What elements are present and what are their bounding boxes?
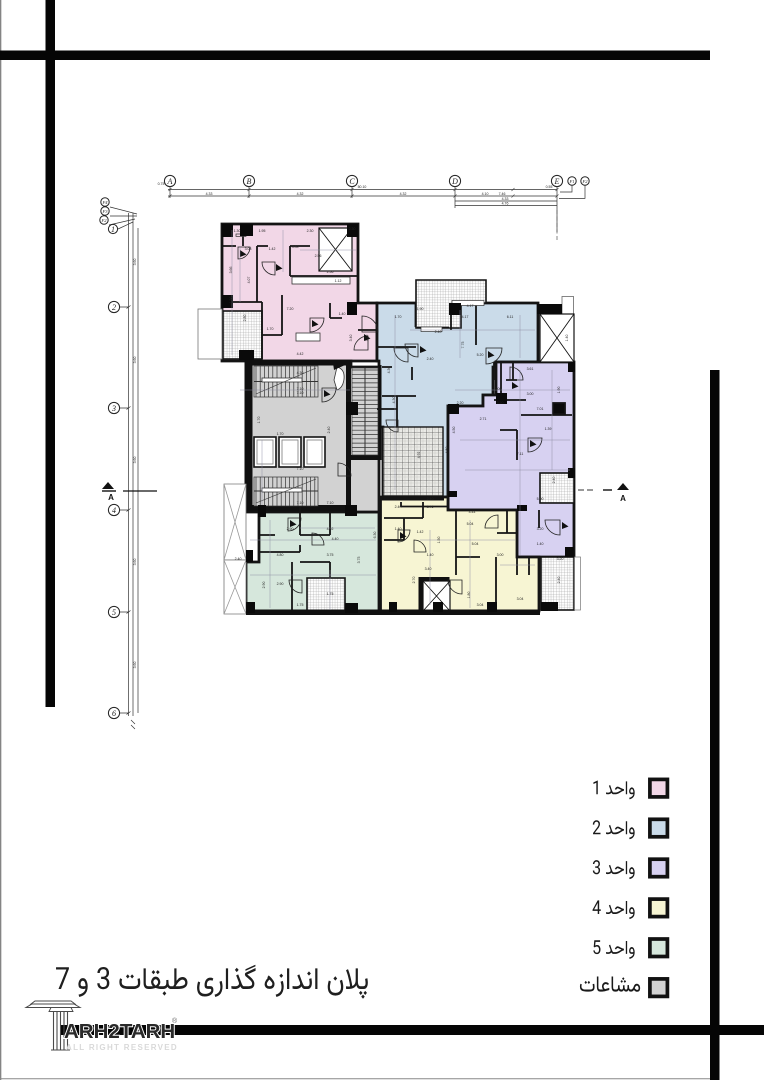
svg-text:1.70: 1.70 bbox=[267, 327, 274, 331]
svg-text:4.17: 4.17 bbox=[467, 304, 474, 308]
svg-text:2.80: 2.80 bbox=[243, 315, 247, 322]
svg-text:2.30: 2.30 bbox=[307, 229, 314, 233]
svg-text:A: A bbox=[620, 494, 626, 503]
svg-text:2.56: 2.56 bbox=[315, 254, 322, 258]
svg-text:2.40: 2.40 bbox=[552, 477, 556, 484]
svg-text:D: D bbox=[451, 177, 458, 186]
svg-text:0.75: 0.75 bbox=[158, 182, 165, 186]
svg-text:2.40: 2.40 bbox=[427, 497, 434, 501]
svg-text:5.00: 5.00 bbox=[537, 497, 544, 501]
svg-text:7.11: 7.11 bbox=[517, 452, 524, 456]
svg-text:6.30: 6.30 bbox=[373, 532, 377, 539]
svg-text:2.40: 2.40 bbox=[327, 427, 331, 434]
svg-text:50.10: 50.10 bbox=[358, 185, 367, 189]
svg-text:F1: F1 bbox=[569, 179, 575, 184]
svg-text:7.01: 7.01 bbox=[537, 407, 544, 411]
svg-text:F2: F2 bbox=[582, 179, 589, 184]
svg-text:3.60: 3.60 bbox=[133, 259, 137, 266]
svg-text:6.11: 6.11 bbox=[507, 315, 514, 319]
svg-text:1.40: 1.40 bbox=[565, 335, 569, 342]
svg-text:1.40: 1.40 bbox=[395, 527, 402, 531]
svg-text:3: 3 bbox=[111, 404, 116, 413]
svg-text:4.30: 4.30 bbox=[387, 367, 391, 374]
svg-text:1.30: 1.30 bbox=[234, 229, 241, 233]
svg-text:1.95: 1.95 bbox=[259, 229, 266, 233]
svg-text:4.33: 4.33 bbox=[206, 192, 213, 196]
svg-text:1.50: 1.50 bbox=[437, 537, 441, 544]
svg-text:5: 5 bbox=[112, 608, 116, 617]
svg-text:7.10: 7.10 bbox=[327, 501, 334, 505]
svg-text:1.36: 1.36 bbox=[229, 297, 233, 304]
svg-text:A: A bbox=[108, 493, 114, 502]
svg-text:2.90: 2.90 bbox=[262, 582, 266, 589]
svg-text:3.00: 3.00 bbox=[497, 553, 504, 557]
svg-text:3.40: 3.40 bbox=[349, 335, 353, 342]
svg-text:ARH2TARH: ARH2TARH bbox=[64, 1020, 175, 1043]
svg-text:2.20: 2.20 bbox=[497, 401, 504, 405]
svg-text:7.20: 7.20 bbox=[287, 307, 294, 311]
svg-text:4.30: 4.30 bbox=[297, 371, 304, 375]
svg-text:3.75: 3.75 bbox=[327, 553, 334, 557]
svg-text:0.55: 0.55 bbox=[546, 185, 553, 189]
svg-text:3.20: 3.20 bbox=[537, 527, 544, 531]
svg-text:7.10: 7.10 bbox=[297, 467, 304, 471]
svg-text:4.44: 4.44 bbox=[469, 510, 476, 514]
svg-text:4.07: 4.07 bbox=[247, 277, 251, 284]
svg-text:4: 4 bbox=[112, 506, 116, 515]
svg-text:2: 2 bbox=[112, 303, 116, 312]
svg-text:3.60: 3.60 bbox=[133, 357, 137, 364]
svg-text:3.60: 3.60 bbox=[133, 662, 137, 669]
svg-text:4.17: 4.17 bbox=[462, 315, 469, 319]
svg-text:5.04: 5.04 bbox=[472, 542, 479, 546]
svg-text:1.70: 1.70 bbox=[395, 315, 402, 319]
svg-text:4.32: 4.32 bbox=[400, 192, 407, 196]
svg-text:3.20: 3.20 bbox=[557, 557, 564, 561]
svg-text:3.08: 3.08 bbox=[292, 245, 299, 249]
svg-text:1.42: 1.42 bbox=[417, 530, 424, 534]
svg-text:E: E bbox=[554, 177, 560, 186]
svg-text:1.90: 1.90 bbox=[557, 387, 561, 394]
svg-text:3.60: 3.60 bbox=[133, 559, 137, 566]
svg-text:2.40: 2.40 bbox=[557, 577, 561, 584]
svg-text:4.76: 4.76 bbox=[502, 202, 509, 206]
svg-text:2.56: 2.56 bbox=[327, 270, 334, 274]
svg-text:3.00: 3.00 bbox=[527, 392, 534, 396]
svg-text:4.92: 4.92 bbox=[417, 452, 421, 459]
svg-text:3.61: 3.61 bbox=[527, 367, 534, 371]
svg-text:2.40: 2.40 bbox=[235, 557, 242, 561]
svg-text:4.42: 4.42 bbox=[297, 352, 304, 356]
svg-text:C: C bbox=[349, 177, 355, 186]
svg-text:4.92: 4.92 bbox=[327, 527, 334, 531]
svg-text:F2: F2 bbox=[101, 218, 108, 223]
svg-text:3.08: 3.08 bbox=[245, 247, 252, 251]
svg-text:4.40: 4.40 bbox=[332, 537, 339, 541]
svg-text:2.30: 2.30 bbox=[349, 227, 356, 231]
svg-text:5.04: 5.04 bbox=[467, 522, 474, 526]
svg-text:2.00: 2.00 bbox=[495, 387, 502, 391]
svg-text:3.66: 3.66 bbox=[229, 267, 233, 274]
svg-text:1: 1 bbox=[111, 225, 115, 234]
svg-text:1.75: 1.75 bbox=[297, 603, 304, 607]
svg-text:4.50: 4.50 bbox=[452, 427, 456, 434]
svg-text:6: 6 bbox=[112, 709, 116, 718]
svg-text:4.32: 4.32 bbox=[297, 192, 304, 196]
svg-text:1.42: 1.42 bbox=[269, 247, 276, 251]
svg-text:ALL RIGHT RESERVED: ALL RIGHT RESERVED bbox=[66, 1043, 178, 1052]
svg-text:7.10: 7.10 bbox=[297, 501, 304, 505]
svg-text:1.12: 1.12 bbox=[335, 279, 342, 283]
svg-text:4.30: 4.30 bbox=[392, 397, 396, 404]
svg-text:4.80: 4.80 bbox=[277, 553, 284, 557]
svg-text:3.75: 3.75 bbox=[357, 557, 361, 564]
svg-text:7.46: 7.46 bbox=[499, 192, 506, 196]
svg-text:2.40: 2.40 bbox=[395, 505, 402, 509]
svg-text:4.50: 4.50 bbox=[445, 447, 449, 454]
svg-text:3.60: 3.60 bbox=[133, 457, 137, 464]
svg-text:1.70: 1.70 bbox=[257, 417, 261, 424]
svg-text:1.40: 1.40 bbox=[339, 312, 346, 316]
svg-text:1.70: 1.70 bbox=[277, 432, 284, 436]
svg-text:4.33: 4.33 bbox=[502, 197, 509, 201]
svg-text:7.10: 7.10 bbox=[297, 391, 304, 395]
svg-text:2.40: 2.40 bbox=[427, 357, 434, 361]
svg-text:2.70: 2.70 bbox=[412, 577, 416, 584]
svg-text:2.71: 2.71 bbox=[480, 417, 487, 421]
svg-text:2.20: 2.20 bbox=[457, 401, 464, 405]
svg-text:F3: F3 bbox=[102, 209, 109, 214]
svg-text:1.40: 1.40 bbox=[537, 542, 544, 546]
svg-text:1.39: 1.39 bbox=[545, 427, 552, 431]
svg-text:1.80: 1.80 bbox=[467, 592, 471, 599]
svg-text:2.90: 2.90 bbox=[277, 582, 284, 586]
svg-text:1.90: 1.90 bbox=[417, 307, 424, 311]
svg-text:4.10: 4.10 bbox=[482, 192, 489, 196]
svg-text:2.40: 2.40 bbox=[435, 330, 442, 334]
svg-text:8.46: 8.46 bbox=[427, 505, 434, 509]
svg-text:3.40: 3.40 bbox=[425, 567, 432, 571]
svg-text:2.90: 2.90 bbox=[287, 527, 294, 531]
svg-text:7.75: 7.75 bbox=[461, 342, 465, 349]
svg-text:®: ® bbox=[172, 1017, 178, 1025]
svg-text:F4: F4 bbox=[102, 200, 109, 205]
svg-text:3.04: 3.04 bbox=[517, 597, 524, 601]
svg-text:1.40: 1.40 bbox=[427, 553, 434, 557]
svg-text:1.75: 1.75 bbox=[327, 592, 334, 596]
svg-text:5.20: 5.20 bbox=[477, 353, 484, 357]
svg-text:A: A bbox=[167, 177, 173, 186]
svg-text:1.12: 1.12 bbox=[365, 335, 369, 342]
svg-text:B: B bbox=[247, 177, 252, 186]
svg-text:3.04: 3.04 bbox=[477, 603, 484, 607]
